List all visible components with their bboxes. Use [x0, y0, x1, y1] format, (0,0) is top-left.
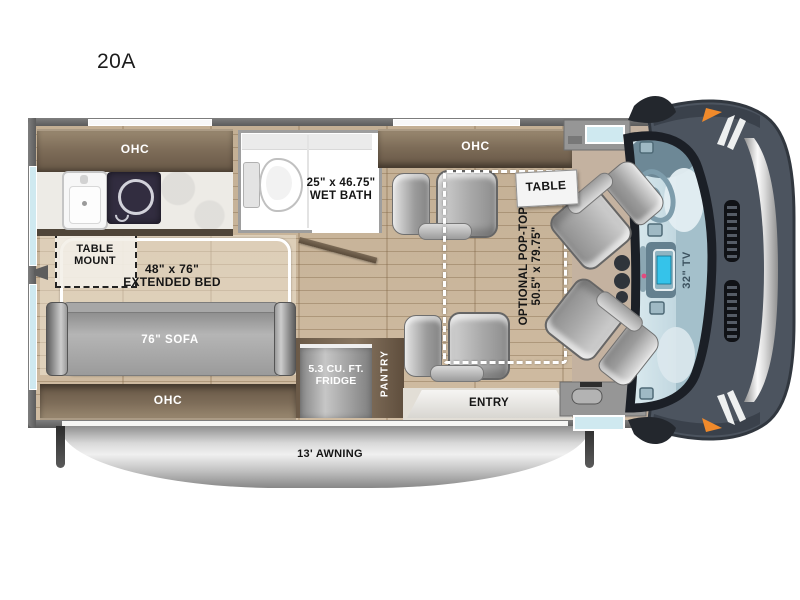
- page-title: 20A: [97, 50, 136, 74]
- tv-label: 32" TV: [681, 251, 693, 289]
- dash-speaker-upper: [640, 142, 653, 153]
- wet-bath-label: 25" x 46.75" WET BATH: [303, 177, 379, 203]
- seat-armrest: [430, 365, 484, 382]
- sofa-label: 76" SOFA: [80, 334, 260, 347]
- ohc-front-label: OHC: [378, 140, 573, 153]
- floorplan-canvas: 20A TABLE MOUNT OHC 25" x 46.75" WET BAT…: [0, 0, 800, 600]
- sofa-arm-left: [46, 302, 68, 376]
- grille-vent-upper: [724, 200, 740, 262]
- grille-vent-lower: [724, 280, 740, 342]
- tv-screen-icon: [657, 256, 671, 284]
- pantry-label: PANTRY: [380, 324, 391, 424]
- toilet-bowl-inner: [266, 166, 292, 200]
- ohc-rear-label: OHC: [40, 394, 296, 407]
- extended-bed-label: 48" x 76" EXTENDED BED: [97, 263, 247, 290]
- awning-label: 13' AWNING: [230, 448, 430, 460]
- cooktop-icon: [107, 172, 161, 224]
- window-rear-upper: [29, 166, 37, 266]
- wet-bath-bottom-wall: [238, 230, 312, 233]
- counter-edge: [37, 229, 233, 236]
- sink-faucet: [80, 175, 88, 184]
- console-cupholders-icon: [614, 255, 630, 303]
- toilet-icon: [243, 162, 260, 208]
- window-top-front: [393, 119, 520, 126]
- window-top-kitchen: [88, 119, 212, 126]
- sink-drain: [82, 201, 87, 206]
- sofa-arm-right: [274, 302, 296, 376]
- awning-cap-left: [56, 426, 65, 468]
- sink-icon: [62, 171, 108, 230]
- driver-door: [564, 120, 630, 150]
- ohc-kitchen-label: OHC: [37, 143, 233, 156]
- window-rear-lower: [29, 284, 37, 390]
- entry-label: ENTRY: [429, 397, 549, 410]
- dash-speaker-lower: [640, 388, 653, 399]
- fridge-label: 5.3 CU. FT. FRIDGE: [300, 364, 372, 387]
